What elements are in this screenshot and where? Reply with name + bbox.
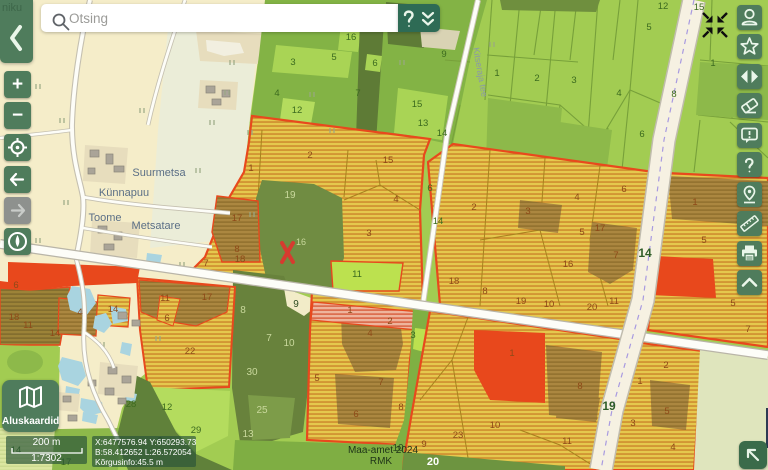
svg-text:19: 19: [284, 190, 296, 201]
svg-text:28: 28: [126, 399, 137, 410]
svg-text:10: 10: [283, 338, 295, 349]
svg-text:2: 2: [387, 316, 392, 327]
svg-text:30: 30: [246, 367, 258, 378]
svg-text:15: 15: [412, 99, 423, 110]
svg-text:14: 14: [433, 216, 444, 227]
svg-text:3: 3: [410, 330, 415, 341]
svg-text:11: 11: [23, 320, 33, 331]
svg-text:3: 3: [290, 57, 295, 68]
svg-text:8: 8: [577, 381, 582, 392]
svg-text:6: 6: [639, 129, 644, 140]
svg-text:Toome: Toome: [88, 212, 121, 224]
svg-text:20: 20: [427, 456, 439, 468]
svg-text:3: 3: [366, 228, 371, 239]
svg-text:15: 15: [383, 155, 394, 166]
svg-text:4: 4: [274, 88, 279, 99]
svg-text:23: 23: [453, 430, 464, 441]
svg-text:16: 16: [296, 237, 306, 247]
svg-text:19: 19: [516, 296, 527, 307]
svg-text:18: 18: [9, 312, 20, 323]
svg-text:8: 8: [240, 305, 246, 316]
svg-text:5: 5: [730, 298, 735, 309]
svg-text:9: 9: [441, 49, 446, 60]
svg-text:4: 4: [616, 88, 621, 99]
svg-text:8: 8: [671, 89, 676, 100]
svg-text:Kitseraja tee: Kitseraja tee: [471, 47, 490, 98]
svg-text:2: 2: [663, 360, 668, 371]
svg-text:Maa-amet 2024: Maa-amet 2024: [348, 445, 418, 456]
svg-text:6: 6: [372, 58, 377, 69]
svg-text:7: 7: [378, 377, 383, 388]
svg-text:6: 6: [427, 183, 432, 194]
svg-text:5: 5: [664, 406, 669, 417]
svg-text:4: 4: [670, 442, 675, 453]
svg-text:1: 1: [692, 197, 697, 208]
svg-text:7: 7: [266, 333, 272, 344]
svg-text:4: 4: [574, 192, 579, 203]
svg-text:5: 5: [331, 52, 336, 63]
svg-text:11: 11: [352, 269, 362, 280]
svg-text:9: 9: [421, 439, 426, 450]
svg-text:2: 2: [471, 202, 476, 213]
svg-text:17: 17: [232, 213, 243, 224]
svg-text:13: 13: [418, 118, 429, 129]
svg-text:5: 5: [701, 235, 706, 246]
svg-text:2: 2: [534, 73, 539, 84]
svg-text:1: 1: [347, 305, 352, 316]
svg-text:18: 18: [235, 254, 246, 265]
svg-text:6: 6: [353, 409, 358, 420]
svg-text:17: 17: [202, 292, 213, 303]
svg-text:14: 14: [108, 304, 119, 315]
svg-text:13: 13: [242, 429, 254, 440]
svg-text:11: 11: [609, 296, 619, 307]
svg-text:22: 22: [185, 346, 196, 357]
svg-text:Künnapuu: Künnapuu: [99, 187, 149, 199]
svg-text:3: 3: [571, 75, 576, 86]
svg-text:12: 12: [162, 402, 173, 413]
svg-text:2: 2: [307, 150, 312, 161]
svg-text:16: 16: [563, 259, 574, 270]
svg-text:7: 7: [613, 250, 618, 261]
svg-text:5: 5: [579, 227, 584, 238]
svg-text:11: 11: [562, 436, 572, 447]
svg-text:RMK: RMK: [370, 456, 393, 467]
svg-text:6: 6: [164, 313, 169, 324]
svg-text:1: 1: [494, 68, 499, 79]
svg-text:8: 8: [482, 286, 487, 297]
svg-text:Metsatare: Metsatare: [132, 220, 181, 232]
svg-text:1: 1: [637, 376, 642, 387]
svg-text:20: 20: [587, 302, 598, 313]
svg-text:3: 3: [630, 418, 635, 429]
svg-text:12: 12: [292, 105, 303, 116]
svg-text:5: 5: [646, 22, 651, 33]
svg-text:9: 9: [293, 299, 299, 310]
svg-text:29: 29: [191, 425, 202, 436]
svg-text:10: 10: [490, 420, 501, 431]
svg-text:6: 6: [13, 280, 18, 291]
svg-text:8: 8: [398, 402, 403, 413]
svg-text:1: 1: [710, 58, 715, 69]
svg-text:10: 10: [544, 299, 555, 310]
svg-text:1: 1: [248, 163, 253, 174]
svg-text:17: 17: [595, 223, 606, 234]
svg-text:6: 6: [621, 184, 626, 195]
svg-text:25: 25: [256, 405, 268, 416]
svg-text:14: 14: [638, 246, 652, 260]
svg-text:19: 19: [602, 399, 616, 413]
svg-text:11: 11: [160, 293, 170, 304]
svg-text:18: 18: [449, 276, 460, 287]
svg-text:7: 7: [203, 258, 208, 269]
svg-text:4: 4: [367, 328, 372, 339]
svg-text:4: 4: [393, 194, 398, 205]
svg-text:4: 4: [77, 307, 82, 318]
svg-text:14: 14: [437, 128, 448, 139]
svg-text:16: 16: [346, 32, 357, 43]
svg-text:5: 5: [314, 373, 319, 384]
svg-text:7: 7: [355, 88, 360, 99]
svg-text:14: 14: [50, 328, 61, 339]
svg-text:3: 3: [525, 206, 530, 217]
svg-text:Suurmetsa: Suurmetsa: [132, 167, 186, 179]
svg-text:7: 7: [745, 324, 750, 335]
svg-text:1: 1: [509, 348, 514, 359]
svg-text:12: 12: [658, 1, 669, 12]
